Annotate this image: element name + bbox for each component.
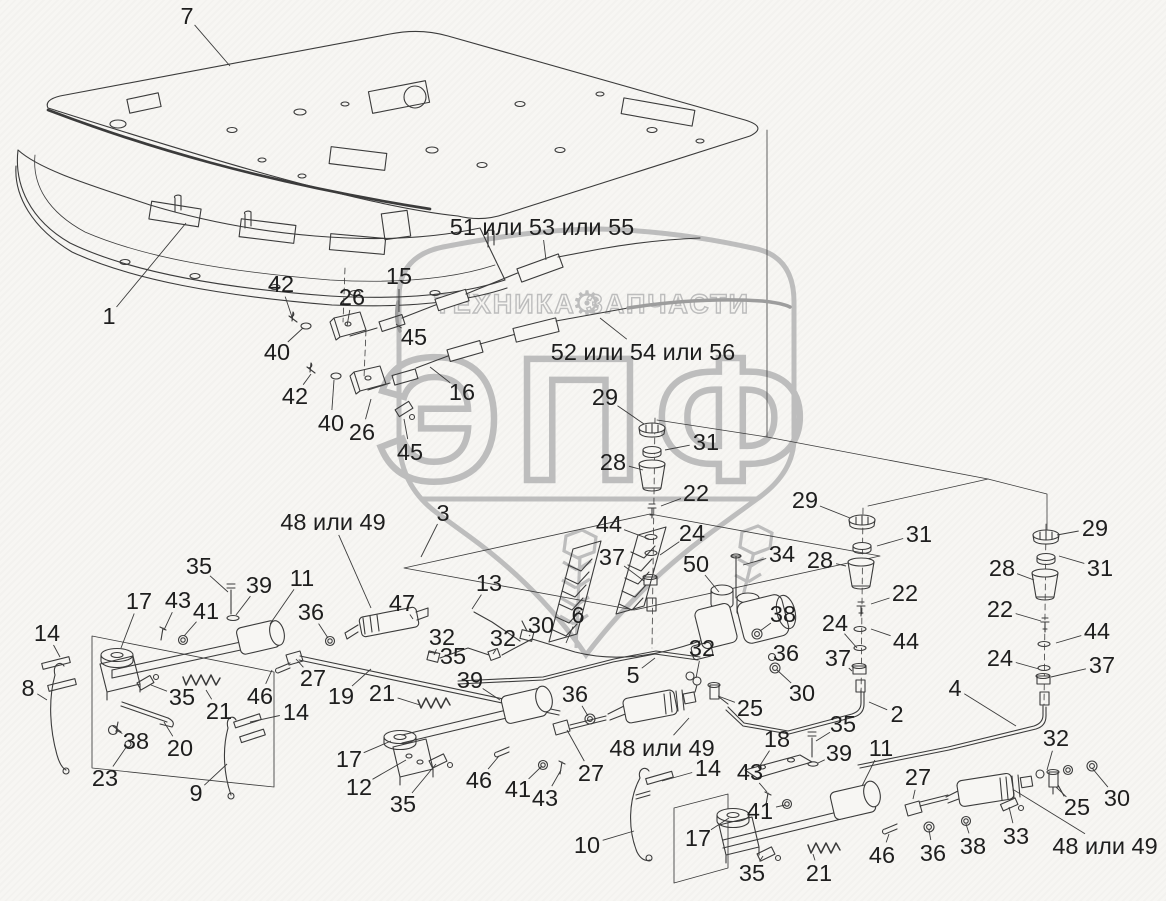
callout-leader	[582, 706, 588, 716]
callout-label: 24	[679, 520, 705, 546]
callout-label: 3	[436, 500, 449, 526]
callout-leader	[236, 596, 250, 615]
callout-label: 39	[457, 667, 483, 693]
callout-leader	[871, 629, 891, 636]
callout-leader	[117, 223, 187, 307]
parts-diagram: ТЕХНИКА ЗАПЧАСТИ ⚙ ЭПФ	[0, 0, 1166, 901]
callout-leader	[398, 698, 420, 705]
callout-leader	[1009, 807, 1013, 823]
callout-label: 6	[571, 602, 584, 628]
callout-leader	[552, 770, 561, 786]
callout-label: 15	[386, 263, 412, 289]
callout-leader	[820, 506, 850, 518]
callout-leader	[818, 760, 825, 763]
callout-label: 14	[34, 620, 60, 646]
callout-label: 22	[892, 580, 918, 606]
callout-leader	[332, 380, 334, 410]
watermark-badge: ТЕХНИКА ЗАПЧАСТИ ⚙ ЭПФ	[376, 229, 820, 655]
callout-leader	[164, 612, 172, 630]
floor-panel-upper	[47, 31, 758, 218]
callout-label: 24	[822, 610, 848, 636]
callout-label: 30	[789, 680, 815, 706]
callout-label: 36	[562, 681, 588, 707]
valve-column-left	[639, 418, 665, 648]
callout-leader	[1051, 669, 1086, 677]
callout-label: 31	[906, 521, 932, 547]
callout-label: 22	[683, 480, 709, 506]
callout-label: 41	[505, 776, 531, 802]
callout-leader	[662, 773, 692, 782]
callout-label: 39	[246, 572, 272, 598]
callout-leader	[421, 524, 438, 557]
callout-label: 1	[102, 303, 115, 329]
callout-leader	[412, 764, 436, 793]
callout-label: 19	[328, 683, 354, 709]
callout-label: 27	[578, 760, 604, 786]
callout-label: 44	[1084, 618, 1110, 644]
callout-label: 41	[193, 598, 219, 624]
pedal-linkage-middle	[384, 672, 728, 861]
callout-label: 32	[689, 635, 715, 661]
callout-leader	[250, 716, 280, 723]
callout-leader	[642, 658, 655, 668]
callout-label: 32	[1043, 725, 1069, 751]
callout-leader	[483, 689, 500, 701]
callout-leader	[544, 240, 546, 260]
callout-label: 8	[21, 675, 34, 701]
callout-label: 14	[695, 755, 721, 781]
callout-label: 21	[369, 680, 395, 706]
callout-label: 36	[920, 840, 946, 866]
callout-leader	[567, 730, 584, 761]
callout-label: 11	[869, 735, 893, 761]
callout-label: 46	[247, 683, 273, 709]
callout-label: 44	[893, 628, 919, 654]
catalog-page: ТЕХНИКА ЗАПЧАСТИ ⚙ ЭПФ	[0, 0, 1166, 901]
callout-leader	[871, 598, 890, 604]
callout-leader	[718, 696, 735, 702]
callout-leader	[869, 702, 887, 710]
callout-label: 46	[869, 842, 895, 868]
callout-label: 47	[389, 590, 415, 616]
callout-label: 42	[282, 383, 308, 409]
callout-label: 30	[1104, 785, 1130, 811]
callout-label: 43	[532, 785, 558, 811]
callout-label: 23	[92, 765, 118, 791]
callout-leader	[288, 328, 303, 342]
callout-label: 7	[180, 3, 193, 29]
callout-leader	[366, 399, 372, 419]
callout-leader	[913, 790, 915, 799]
callout-label: 22	[987, 596, 1013, 622]
valve-column-right	[858, 524, 1059, 768]
callout-label: 20	[167, 735, 193, 761]
callout-label: 36	[773, 640, 799, 666]
callout-leader	[54, 645, 61, 657]
callout-label: 35	[440, 643, 466, 669]
callout-label: 31	[693, 429, 719, 455]
callout-leader	[1047, 751, 1052, 770]
callout-label: 37	[1089, 652, 1115, 678]
callout-label: 35	[739, 860, 765, 886]
callout-label: 16	[449, 379, 475, 405]
callout-leader	[624, 530, 649, 539]
callout-leader	[210, 576, 228, 592]
callout-label: 34	[769, 541, 795, 567]
callout-leader	[1017, 574, 1034, 580]
callout-label: 17	[685, 825, 711, 851]
callout-label: 11	[290, 565, 314, 591]
callout-label: 39	[826, 740, 852, 766]
callout-label: 48 или 49	[1052, 833, 1157, 859]
callout-leader	[339, 535, 371, 608]
callout-leader	[660, 542, 679, 555]
callout-label: 50	[683, 551, 709, 577]
callout-label: 38	[770, 601, 796, 627]
callout-label: 35	[186, 553, 212, 579]
callout-label: 42	[268, 271, 294, 297]
callout-label: 28	[989, 555, 1015, 581]
callout-leader	[151, 685, 167, 691]
callout-leader	[1016, 663, 1039, 670]
callout-label: 18	[764, 726, 790, 752]
callout-label: 10	[574, 832, 600, 858]
callout-leader	[195, 25, 230, 66]
callout-label: 35	[169, 684, 195, 710]
callout-leader	[1059, 556, 1084, 563]
callout-label: 9	[189, 780, 202, 806]
callout-label: 37	[825, 645, 851, 671]
callout-label: 35	[830, 711, 856, 737]
callout-leader	[37, 694, 47, 700]
callout-label: 40	[318, 410, 344, 436]
callout-label: 28	[807, 547, 833, 573]
callout-label: 40	[264, 339, 290, 365]
callout-label: 52 или 54 или 56	[551, 339, 735, 365]
callout-label: 21	[206, 698, 232, 724]
callout-label: 13	[476, 570, 502, 596]
callout-leader	[1056, 636, 1081, 643]
callout-label: 17	[336, 746, 362, 772]
callout-leader	[964, 694, 1016, 726]
callout-leader	[347, 310, 350, 326]
callout-leader	[270, 589, 294, 624]
callout-label: 12	[346, 774, 372, 800]
callout-leader	[603, 831, 634, 840]
callout-leader	[877, 539, 903, 547]
callout-label: 29	[1082, 515, 1108, 541]
callout-label: 36	[298, 599, 324, 625]
callout-label: 27	[905, 764, 931, 790]
callout-label: 38	[960, 833, 986, 859]
callout-label: 25	[737, 695, 763, 721]
callout-label: 14	[283, 699, 309, 725]
callout-label: 48 или 49	[280, 509, 385, 535]
callout-label: 24	[987, 645, 1013, 671]
callout-label: 44	[596, 511, 622, 537]
callout-leader	[319, 624, 328, 638]
callout-label: 26	[349, 419, 375, 445]
callout-leader	[1057, 531, 1079, 535]
callout-leader	[1016, 614, 1041, 621]
callout-label: 17	[126, 588, 152, 614]
callout-label: 29	[592, 384, 618, 410]
callout-leader	[696, 661, 699, 678]
callout-label: 32	[490, 625, 516, 651]
callout-label: 33	[1003, 823, 1029, 849]
callout-label: 45	[397, 439, 423, 465]
callout-label: 26	[339, 284, 365, 310]
callout-label: 2	[890, 701, 903, 727]
callout-leader	[266, 670, 272, 684]
callout-label: 43	[165, 587, 191, 613]
callout-label: 35	[390, 791, 416, 817]
callout-label: 31	[1087, 555, 1113, 581]
callout-label: 27	[300, 665, 326, 691]
callout-label: 37	[599, 544, 625, 570]
callout-label: 46	[466, 767, 492, 793]
callout-label: 29	[792, 487, 818, 513]
callout-label: 4	[948, 675, 961, 701]
callout-label: 28	[600, 449, 626, 475]
callout-leader	[674, 718, 690, 735]
callout-label: 25	[1064, 794, 1090, 820]
callout-label: 30	[528, 612, 554, 638]
callout-label: 41	[747, 798, 773, 824]
callout-leader	[113, 746, 127, 767]
callout-label: 5	[626, 662, 639, 688]
callout-label: 43	[737, 759, 763, 785]
callout-label: 51 или 53 или 55	[450, 214, 634, 240]
callout-label: 21	[806, 860, 832, 886]
callout-leader	[472, 595, 481, 609]
callout-label: 45	[401, 324, 427, 350]
callout-label: 38	[123, 728, 149, 754]
